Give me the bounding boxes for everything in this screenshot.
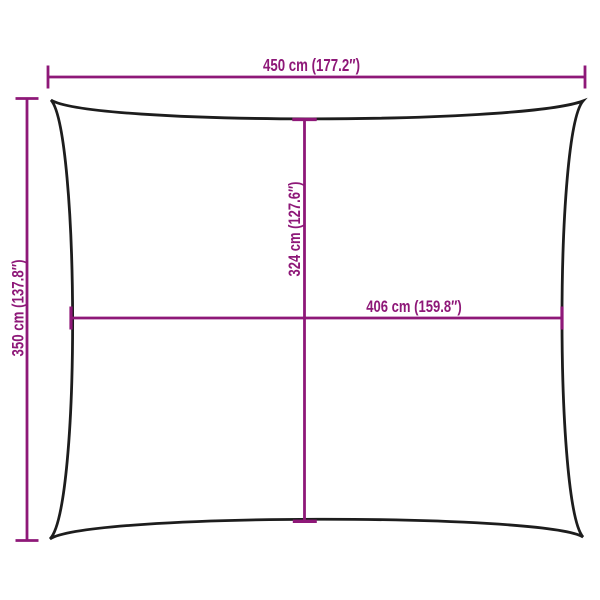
svg-text:406 cm (159.8″): 406 cm (159.8″) <box>366 297 462 316</box>
svg-text:450 cm (177.2″): 450 cm (177.2″) <box>263 55 360 75</box>
svg-text:324 cm (127.6″): 324 cm (127.6″) <box>285 182 304 277</box>
svg-text:350 cm (137.8″): 350 cm (137.8″) <box>9 260 28 357</box>
